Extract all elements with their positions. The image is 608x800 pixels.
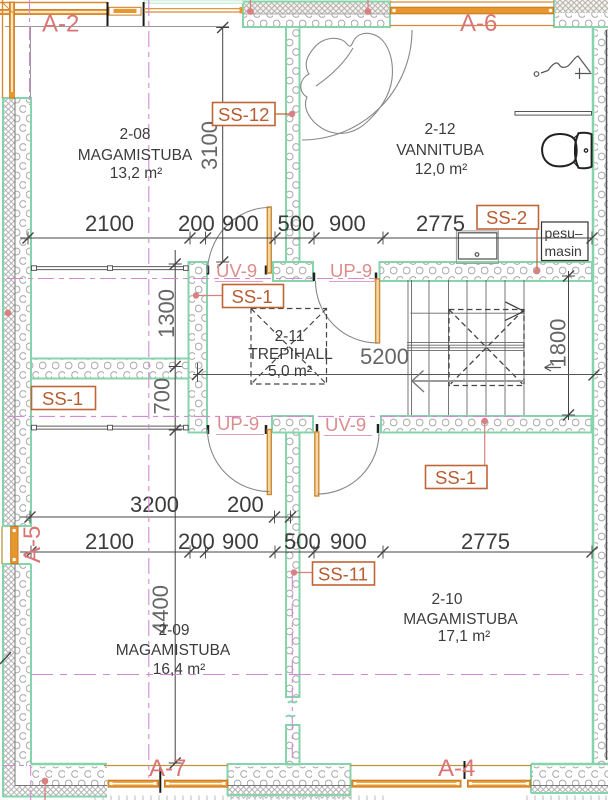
svg-text:5,0 m²: 5,0 m² — [268, 363, 312, 380]
svg-text:200: 200 — [227, 492, 264, 517]
svg-text:1300: 1300 — [154, 289, 179, 338]
svg-text:MAGAMISTUBA: MAGAMISTUBA — [116, 642, 231, 659]
svg-text:200: 200 — [178, 211, 215, 236]
svg-text:SS-11: SS-11 — [318, 564, 368, 585]
svg-text:2100: 2100 — [85, 211, 134, 236]
svg-text:SS-1: SS-1 — [435, 467, 476, 488]
svg-text:2775: 2775 — [416, 211, 465, 236]
svg-text:SS-1: SS-1 — [42, 388, 83, 409]
svg-text:3100: 3100 — [197, 121, 222, 170]
svg-text:UV-9: UV-9 — [325, 414, 366, 435]
svg-text:16,4 m²: 16,4 m² — [153, 661, 206, 678]
svg-text:2100: 2100 — [85, 529, 134, 554]
svg-text:13,2 m²: 13,2 m² — [110, 165, 163, 182]
svg-text:TREPIHALL: TREPIHALL — [248, 346, 333, 363]
svg-text:SS-1: SS-1 — [232, 286, 273, 307]
svg-text:1800: 1800 — [546, 319, 571, 368]
svg-text:2-10: 2-10 — [431, 591, 462, 608]
svg-text:2-09: 2-09 — [158, 622, 189, 639]
svg-text:12,0 m²: 12,0 m² — [415, 161, 468, 178]
svg-text:200: 200 — [178, 529, 215, 554]
svg-text:5200: 5200 — [360, 344, 409, 369]
svg-text:pesu–: pesu– — [545, 225, 583, 241]
svg-text:UP-9: UP-9 — [217, 413, 259, 434]
svg-text:2-12: 2-12 — [424, 121, 455, 138]
svg-text:700: 700 — [149, 378, 174, 415]
svg-text:2775: 2775 — [461, 529, 510, 554]
svg-text:SS-2: SS-2 — [486, 207, 527, 228]
svg-text:A-2: A-2 — [42, 11, 79, 38]
svg-text:A-4: A-4 — [438, 755, 475, 782]
svg-text:3200: 3200 — [130, 492, 179, 517]
svg-text:MAGAMISTUBA: MAGAMISTUBA — [403, 611, 518, 628]
svg-text:2-11: 2-11 — [275, 328, 305, 345]
svg-text:masin: masin — [545, 243, 582, 259]
svg-text:900: 900 — [329, 211, 366, 236]
svg-text:A-7: A-7 — [149, 755, 186, 782]
svg-text:MAGAMISTUBA: MAGAMISTUBA — [78, 147, 193, 164]
svg-text:900: 900 — [330, 529, 367, 554]
svg-text:UV-9: UV-9 — [216, 260, 257, 281]
svg-text:500: 500 — [284, 529, 321, 554]
svg-text:2-08: 2-08 — [119, 126, 150, 143]
svg-text:900: 900 — [222, 211, 259, 236]
svg-text:UP-9: UP-9 — [330, 260, 372, 281]
svg-text:SS-12: SS-12 — [218, 104, 269, 125]
svg-text:900: 900 — [222, 529, 259, 554]
svg-text:17,1 m²: 17,1 m² — [438, 628, 491, 645]
svg-text:A-5: A-5 — [19, 526, 46, 563]
svg-text:A-6: A-6 — [460, 10, 497, 37]
svg-text:500: 500 — [278, 211, 315, 236]
svg-text:VANNITUBA: VANNITUBA — [396, 142, 484, 159]
